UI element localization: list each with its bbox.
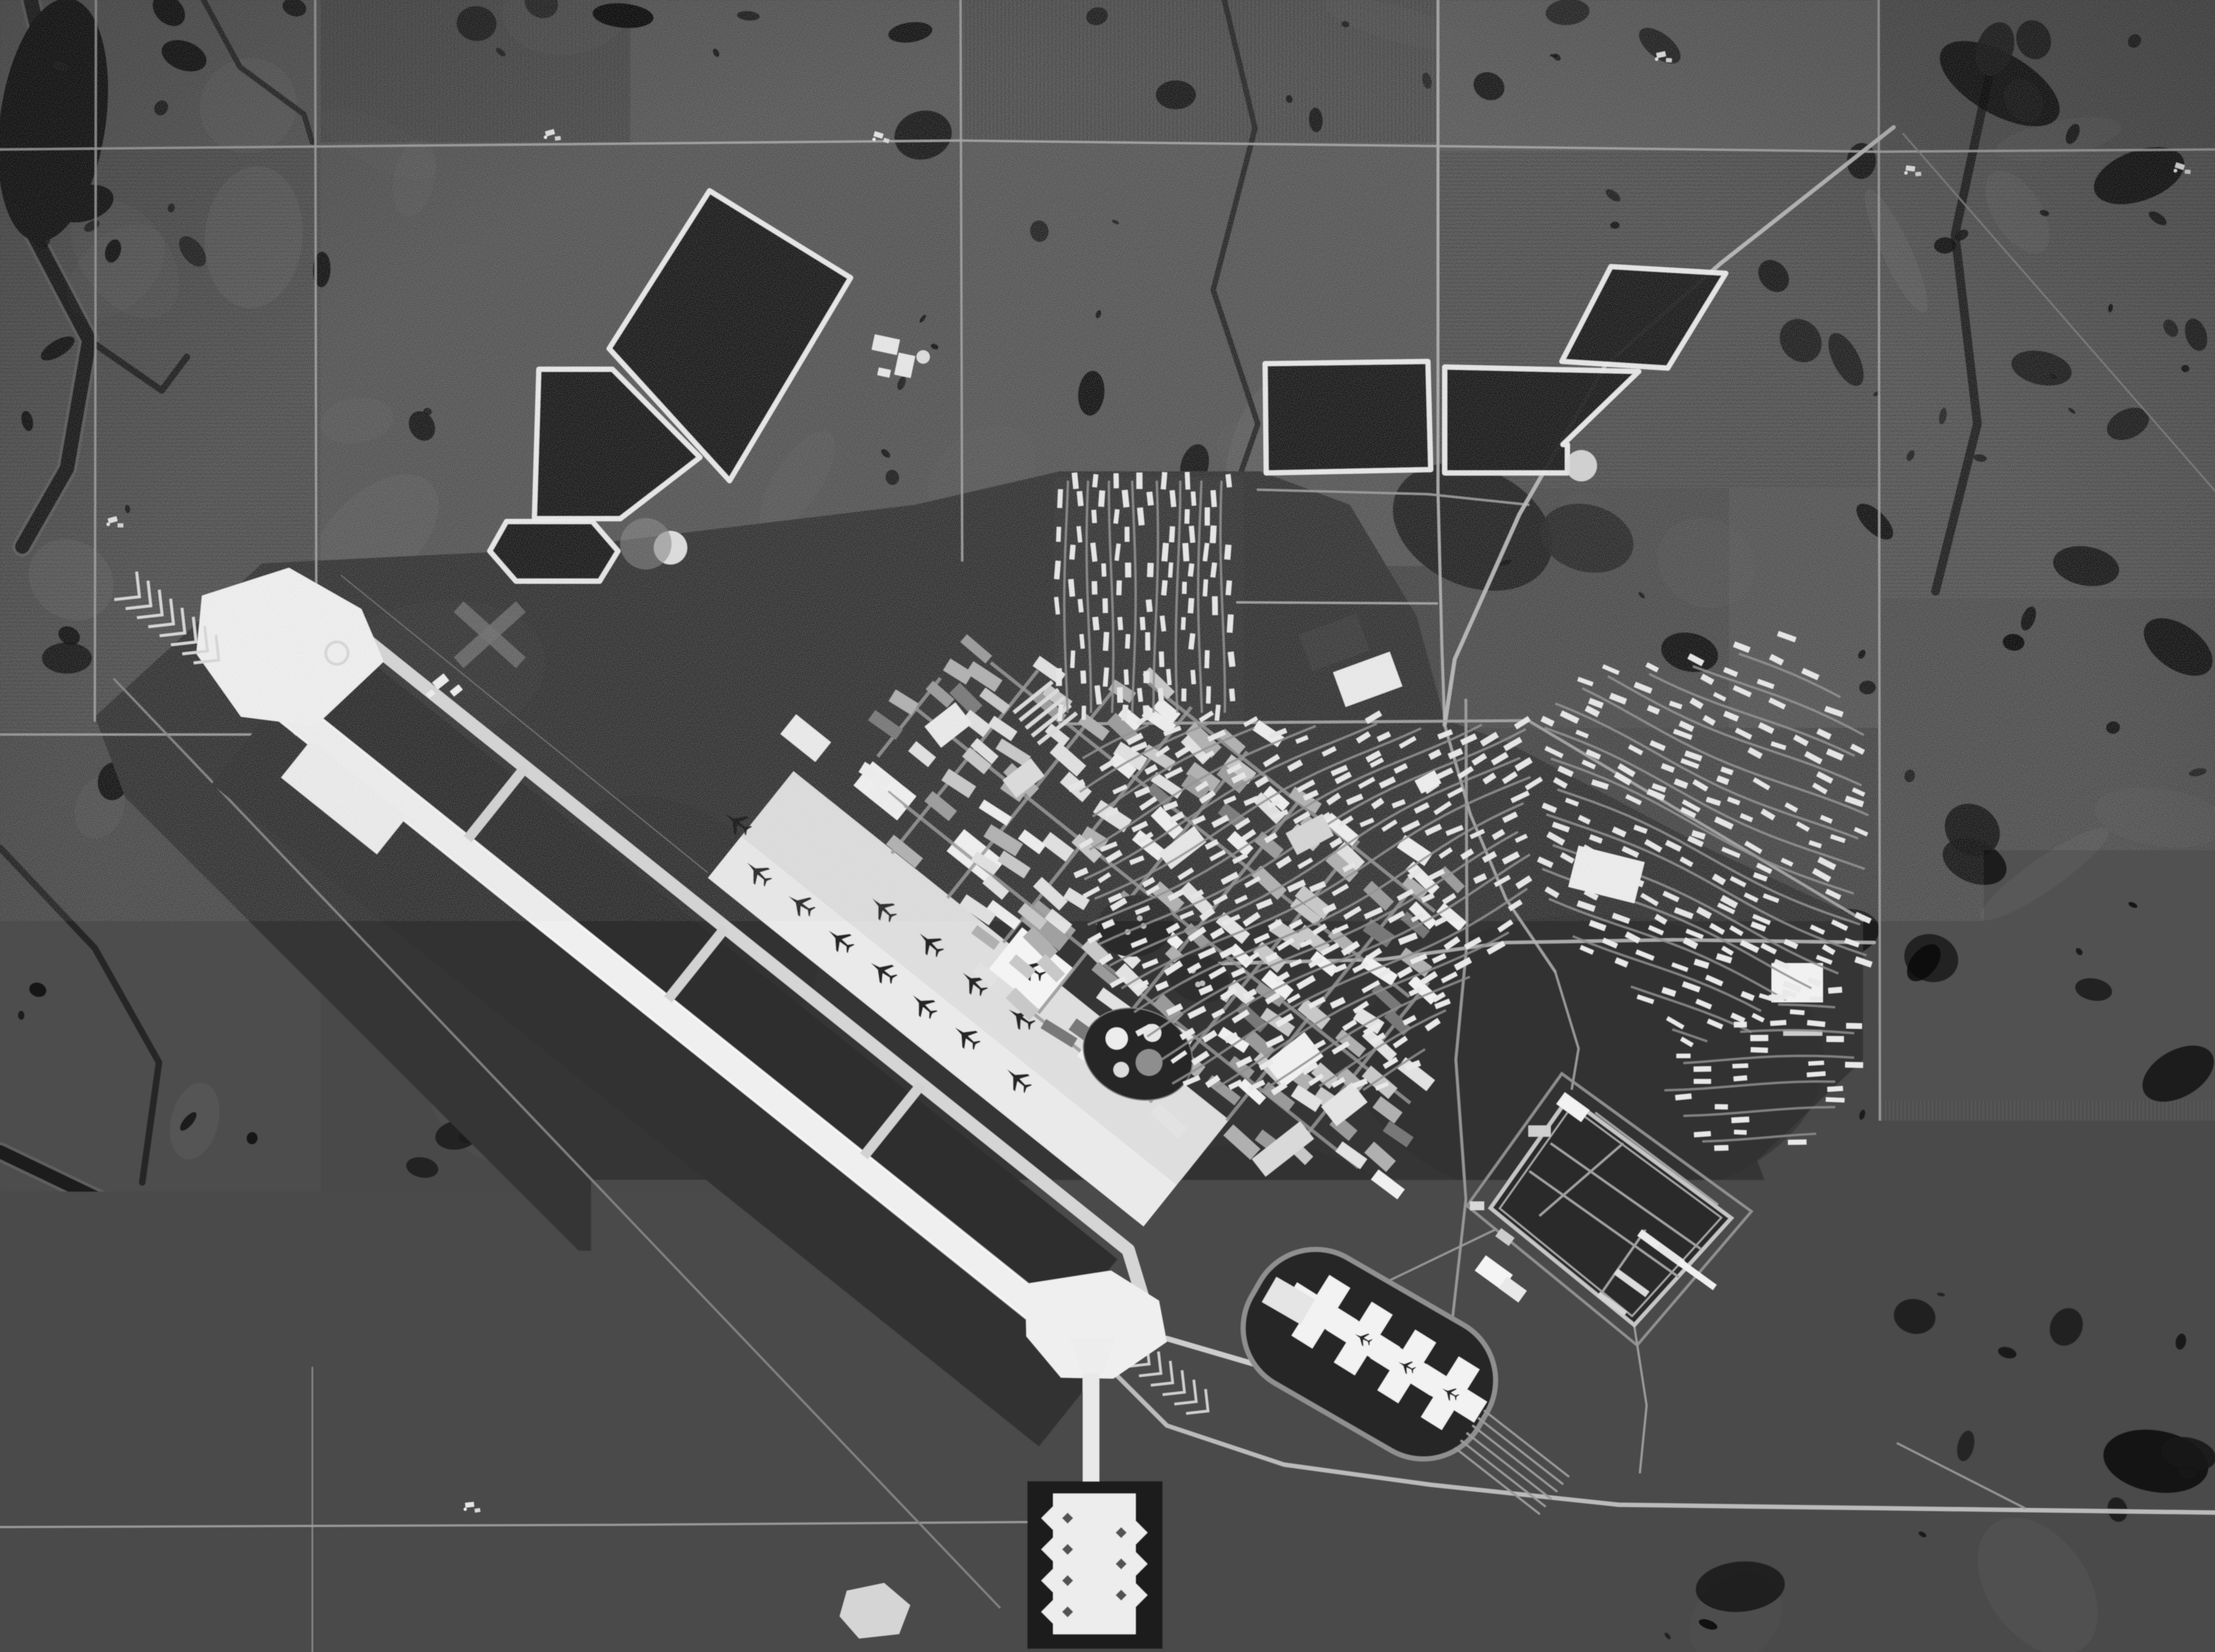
satellite-photo-viewport	[0, 0, 2215, 1652]
satellite-photo	[0, 0, 2215, 1652]
vignette-overlay	[0, 0, 2215, 1652]
